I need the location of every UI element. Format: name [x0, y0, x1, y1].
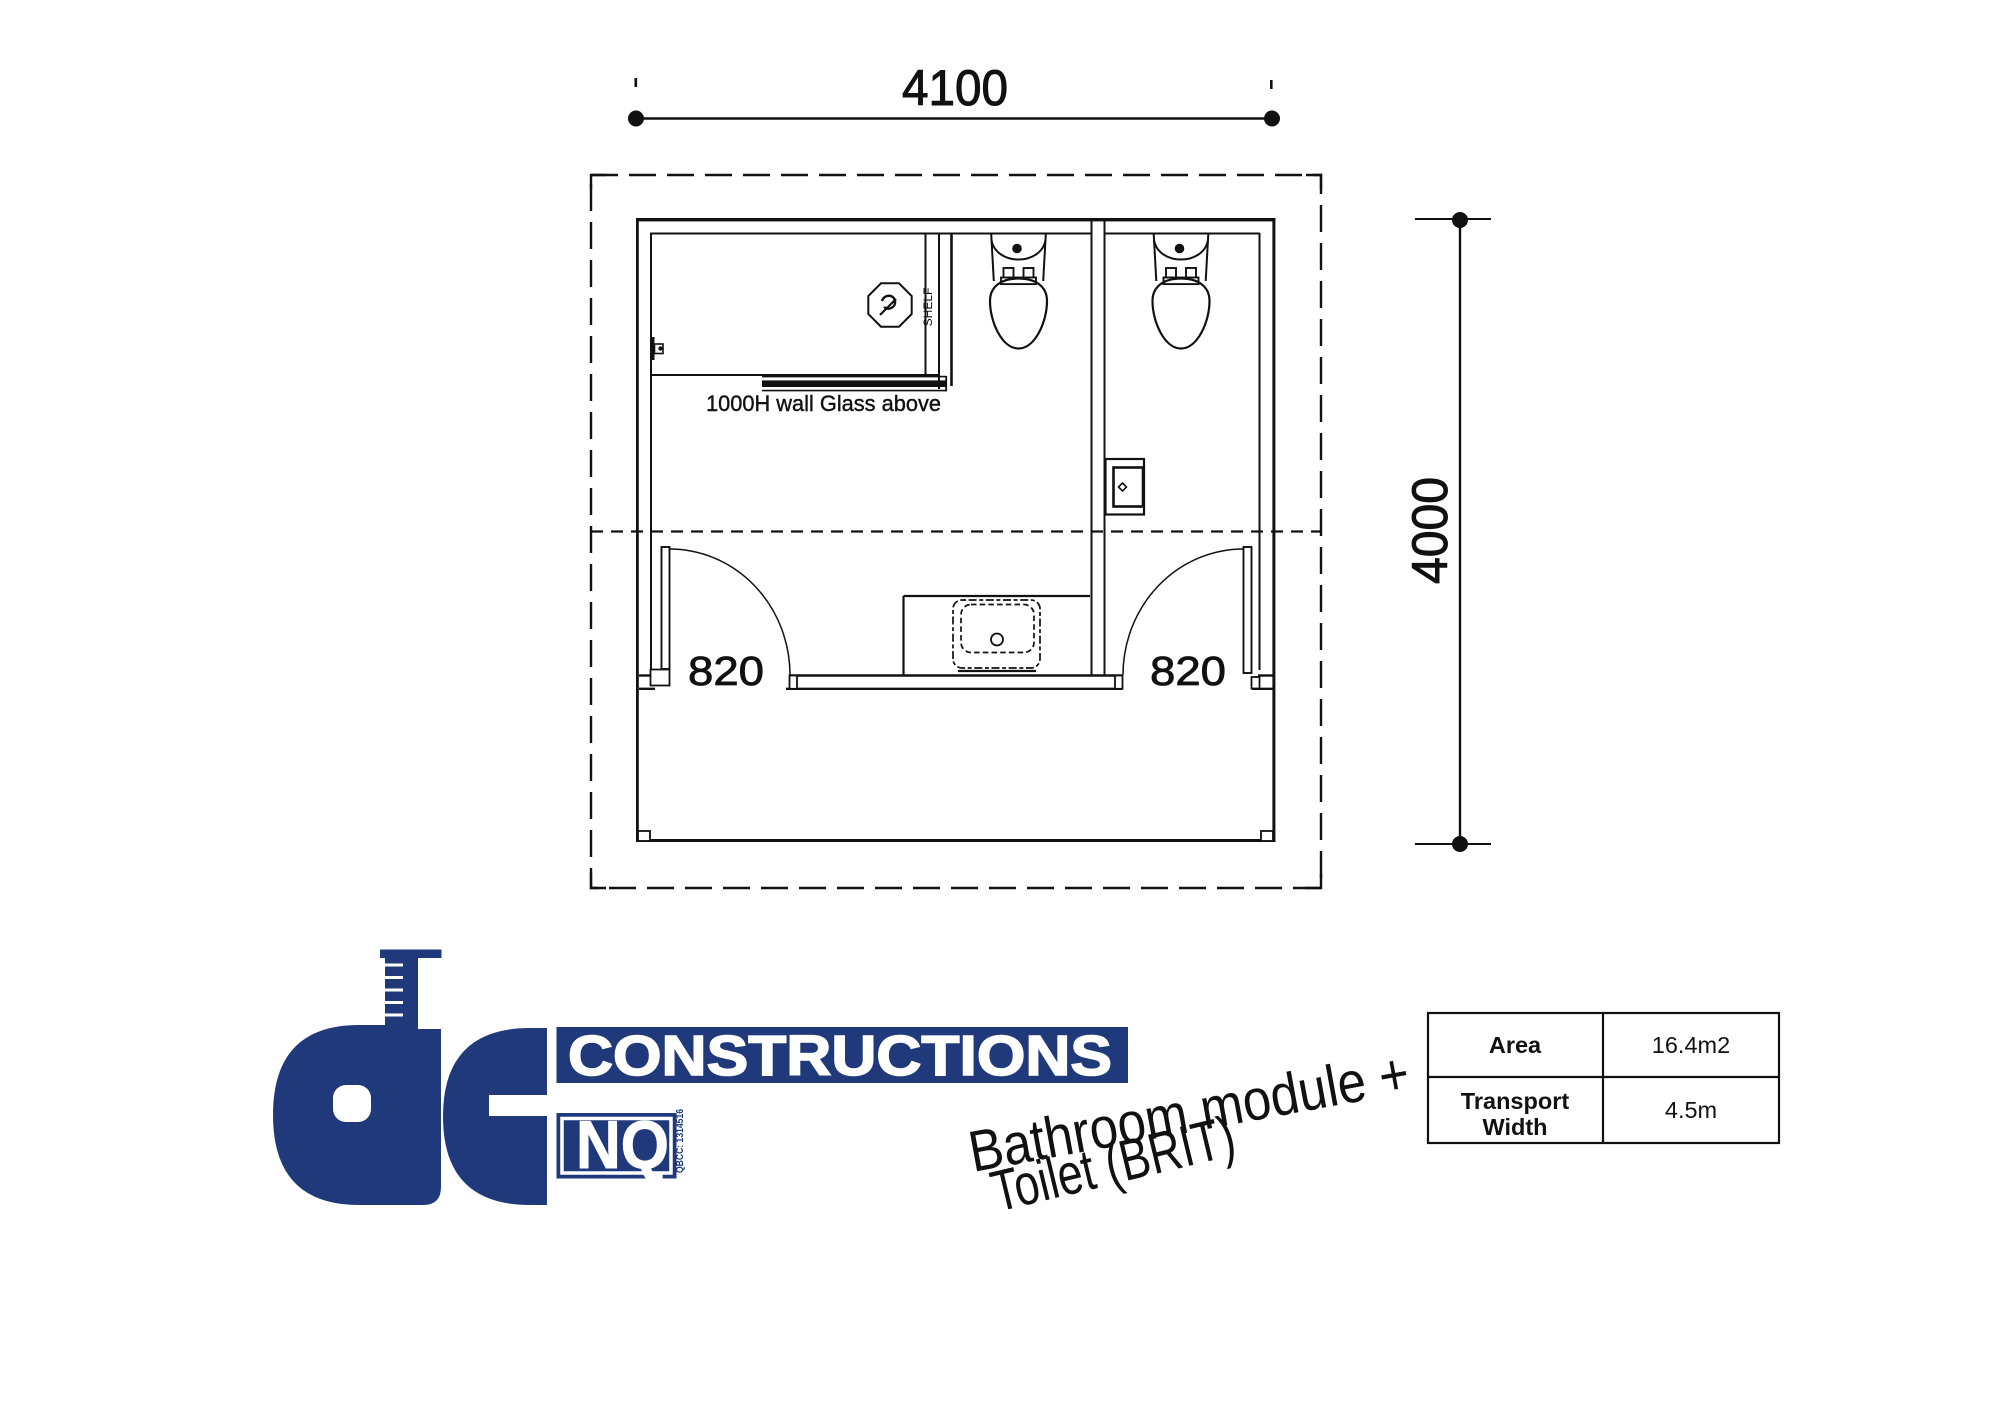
svg-text:820: 820: [1150, 648, 1226, 694]
svg-text:Area: Area: [1489, 1032, 1542, 1058]
svg-text:NQ: NQ: [576, 1107, 669, 1183]
svg-text:4.5m: 4.5m: [1665, 1097, 1717, 1123]
svg-text:4100: 4100: [902, 60, 1008, 116]
svg-text:Transport: Transport: [1461, 1088, 1570, 1114]
svg-text:QBCC: 1314516: QBCC: 1314516: [675, 1109, 686, 1173]
svg-text:1000H wall Glass above: 1000H wall Glass above: [706, 391, 941, 416]
svg-text:Width: Width: [1482, 1114, 1547, 1140]
svg-text:4000: 4000: [1402, 477, 1458, 584]
svg-text:SHELF: SHELF: [921, 288, 935, 327]
svg-text:16.4m2: 16.4m2: [1652, 1032, 1730, 1058]
svg-text:820: 820: [688, 648, 764, 694]
svg-text:CONSTRUCTIONS: CONSTRUCTIONS: [568, 1024, 1112, 1088]
